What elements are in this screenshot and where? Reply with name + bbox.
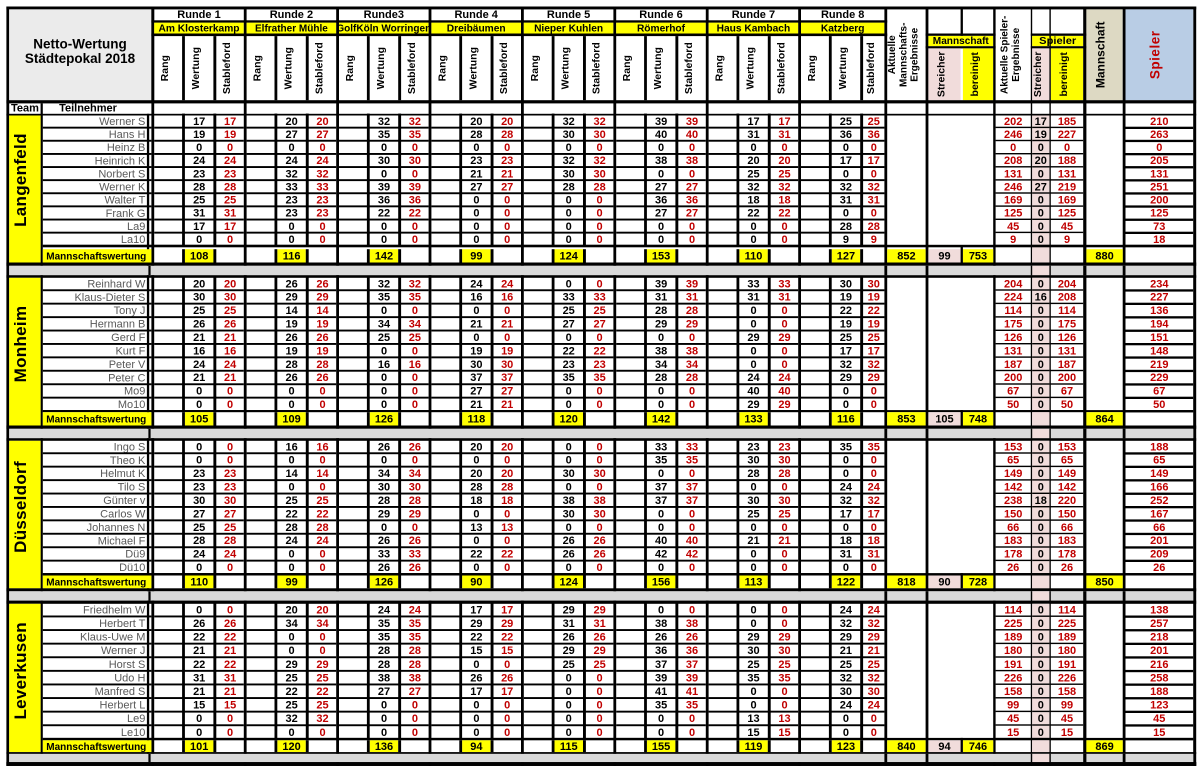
svg-text:39: 39 [409,181,421,193]
svg-text:26: 26 [470,672,482,684]
svg-text:216: 216 [1150,659,1168,671]
svg-text:Runde 7: Runde 7 [732,9,775,21]
svg-text:Wertung: Wertung [467,47,479,89]
svg-text:0: 0 [1038,508,1044,520]
svg-text:0: 0 [504,195,510,207]
svg-text:24: 24 [778,372,791,384]
svg-text:227: 227 [1058,129,1076,141]
svg-text:18: 18 [840,535,852,547]
svg-text:0: 0 [319,142,325,154]
svg-text:28: 28 [224,535,236,547]
svg-text:21: 21 [840,645,852,657]
svg-text:0: 0 [289,632,295,644]
svg-text:25: 25 [778,508,790,520]
svg-text:20: 20 [316,116,328,128]
svg-text:17: 17 [747,116,759,128]
svg-text:Nieper Kuhlen: Nieper Kuhlen [534,24,603,35]
svg-text:26: 26 [378,562,390,574]
svg-text:0: 0 [227,386,233,398]
svg-text:Stableford: Stableford [776,42,788,94]
svg-text:Wertung: Wertung [745,47,757,89]
svg-text:0: 0 [412,221,418,233]
svg-text:26: 26 [193,618,205,630]
svg-text:189: 189 [1004,632,1022,644]
svg-text:19: 19 [840,292,852,304]
svg-text:65: 65 [1061,455,1073,467]
svg-text:Am Klosterkamp: Am Klosterkamp [159,24,240,35]
svg-text:Stableford: Stableford [865,42,877,94]
svg-text:45: 45 [1061,221,1073,233]
svg-text:0: 0 [597,386,603,398]
svg-text:0: 0 [689,221,695,233]
svg-text:39: 39 [655,672,667,684]
svg-text:108: 108 [190,251,208,263]
svg-text:0: 0 [1038,195,1044,207]
svg-text:225: 225 [1004,618,1022,630]
svg-text:Kurt F: Kurt F [115,346,145,358]
svg-text:142: 142 [1004,482,1022,494]
svg-text:13: 13 [747,713,759,725]
svg-text:Haus Kambach: Haus Kambach [717,24,791,35]
svg-text:24: 24 [868,482,881,494]
svg-text:0: 0 [566,195,572,207]
svg-text:La10: La10 [121,234,145,246]
svg-text:15: 15 [1061,727,1073,739]
svg-text:0: 0 [1038,332,1044,344]
svg-text:67: 67 [1153,386,1165,398]
svg-text:0: 0 [227,562,233,574]
svg-text:30: 30 [747,495,759,507]
svg-text:31: 31 [778,129,790,141]
svg-text:31: 31 [193,672,205,684]
svg-text:0: 0 [843,455,849,467]
svg-text:32: 32 [840,359,852,371]
svg-text:Aktuelle: Aktuelle [887,35,898,74]
svg-text:32: 32 [593,155,605,167]
svg-text:18: 18 [470,495,482,507]
svg-text:13: 13 [778,713,790,725]
svg-text:0: 0 [843,399,849,411]
svg-text:30: 30 [747,645,759,657]
svg-text:35: 35 [409,129,421,141]
svg-text:748: 748 [969,414,987,426]
svg-text:Heinrich K: Heinrich K [95,155,146,167]
svg-text:21: 21 [501,319,513,331]
svg-text:0: 0 [750,319,756,331]
svg-text:133: 133 [744,414,762,426]
svg-text:728: 728 [969,577,987,589]
svg-text:Mo9: Mo9 [124,386,145,398]
svg-text:Tilo S: Tilo S [118,482,146,494]
svg-text:0: 0 [289,221,295,233]
svg-text:0: 0 [871,168,877,180]
svg-text:25: 25 [593,659,605,671]
svg-text:0: 0 [566,562,572,574]
svg-text:0: 0 [566,686,572,698]
svg-text:0: 0 [473,195,479,207]
svg-text:0: 0 [473,142,479,154]
svg-text:18: 18 [1035,495,1047,507]
svg-text:124: 124 [560,577,579,589]
svg-text:Helmut K: Helmut K [100,468,146,480]
svg-text:23: 23 [316,208,328,220]
svg-text:0: 0 [781,359,787,371]
svg-text:33: 33 [747,278,759,290]
svg-text:Streicher: Streicher [936,52,948,98]
svg-text:0: 0 [781,604,787,616]
svg-text:25: 25 [778,168,790,180]
svg-text:26: 26 [686,632,698,644]
svg-text:26: 26 [316,372,328,384]
svg-text:0: 0 [597,455,603,467]
svg-text:18: 18 [747,195,759,207]
svg-text:25: 25 [563,305,575,317]
svg-text:138: 138 [1150,604,1168,616]
svg-text:25: 25 [593,305,605,317]
svg-text:0: 0 [658,508,664,520]
svg-text:0: 0 [750,221,756,233]
svg-text:Walter T: Walter T [104,195,145,207]
svg-text:30: 30 [563,129,575,141]
svg-text:0: 0 [412,455,418,467]
svg-text:Klaus-Dieter S: Klaus-Dieter S [74,292,145,304]
svg-text:0: 0 [658,168,664,180]
svg-text:0: 0 [658,386,664,398]
svg-text:20: 20 [501,468,513,480]
svg-text:0: 0 [504,305,510,317]
svg-text:Günter v: Günter v [103,495,146,507]
svg-text:38: 38 [409,672,421,684]
svg-text:220: 220 [1058,495,1076,507]
svg-text:39: 39 [686,116,698,128]
svg-text:29: 29 [655,319,667,331]
svg-text:0: 0 [412,713,418,725]
svg-text:Werner J: Werner J [101,645,145,657]
svg-text:32: 32 [868,359,880,371]
svg-text:0: 0 [843,468,849,480]
svg-text:0: 0 [473,208,479,220]
svg-text:Udo H: Udo H [114,672,145,684]
svg-text:18: 18 [778,195,790,207]
svg-text:0: 0 [412,522,418,534]
svg-text:0: 0 [196,142,202,154]
svg-text:175: 175 [1004,319,1022,331]
svg-text:32: 32 [593,116,605,128]
svg-text:126: 126 [375,577,393,589]
svg-text:20: 20 [470,468,482,480]
svg-text:25: 25 [224,522,236,534]
svg-text:26: 26 [316,278,328,290]
svg-text:31: 31 [686,292,698,304]
svg-text:0: 0 [289,562,295,574]
svg-text:99: 99 [1061,700,1073,712]
svg-text:0: 0 [689,522,695,534]
svg-text:35: 35 [409,632,421,644]
svg-text:24: 24 [193,155,206,167]
svg-text:22: 22 [563,345,575,357]
svg-text:21: 21 [470,319,482,331]
svg-text:0: 0 [196,604,202,616]
svg-text:0: 0 [781,562,787,574]
svg-text:28: 28 [193,181,205,193]
svg-text:0: 0 [412,142,418,154]
svg-text:Runde3: Runde3 [364,9,404,21]
svg-text:27: 27 [686,208,698,220]
svg-text:118: 118 [468,414,486,426]
svg-text:105: 105 [935,414,953,426]
svg-text:0: 0 [871,399,877,411]
svg-text:0: 0 [566,208,572,220]
svg-text:21: 21 [778,535,790,547]
svg-text:0: 0 [504,727,510,739]
svg-text:131: 131 [1058,168,1076,180]
svg-text:0: 0 [658,604,664,616]
svg-text:25: 25 [378,332,390,344]
svg-text:17: 17 [501,686,513,698]
svg-text:818: 818 [897,577,915,589]
svg-text:0: 0 [597,234,603,246]
svg-text:27: 27 [470,386,482,398]
svg-text:125: 125 [1004,208,1022,220]
svg-text:0: 0 [689,168,695,180]
svg-text:31: 31 [193,208,205,220]
svg-text:33: 33 [563,292,575,304]
svg-text:0: 0 [658,142,664,154]
svg-text:18: 18 [501,495,513,507]
svg-text:0: 0 [319,221,325,233]
svg-text:187: 187 [1004,359,1022,371]
svg-text:15: 15 [501,645,513,657]
svg-text:0: 0 [319,399,325,411]
svg-text:0: 0 [871,386,877,398]
svg-text:149: 149 [1150,468,1168,480]
svg-text:Mannschaftswertung: Mannschaftswertung [46,252,146,263]
svg-text:30: 30 [409,482,421,494]
svg-text:19: 19 [501,345,513,357]
svg-text:90: 90 [938,577,950,589]
svg-text:26: 26 [409,535,421,547]
svg-text:17: 17 [224,116,236,128]
svg-text:13: 13 [470,522,482,534]
svg-text:25: 25 [868,116,880,128]
svg-text:22: 22 [224,659,236,671]
svg-text:Mo10: Mo10 [118,399,146,411]
svg-text:67: 67 [1007,386,1019,398]
svg-text:0: 0 [597,399,603,411]
svg-text:0: 0 [658,727,664,739]
svg-text:0: 0 [689,234,695,246]
svg-text:27: 27 [470,181,482,193]
svg-text:0: 0 [227,399,233,411]
svg-text:30: 30 [778,455,790,467]
svg-text:Wertung: Wertung [837,47,849,89]
svg-text:225: 225 [1058,618,1076,630]
svg-text:0: 0 [1038,234,1044,246]
svg-text:38: 38 [655,345,667,357]
svg-text:22: 22 [316,686,328,698]
svg-text:0: 0 [658,562,664,574]
svg-text:0: 0 [473,221,479,233]
svg-text:20: 20 [501,116,513,128]
svg-text:25: 25 [747,508,759,520]
svg-text:0: 0 [381,727,387,739]
svg-text:29: 29 [868,372,880,384]
svg-text:17: 17 [840,508,852,520]
svg-text:38: 38 [686,155,698,167]
svg-text:0: 0 [750,700,756,712]
svg-text:Hans H: Hans H [109,129,146,141]
svg-text:0: 0 [289,727,295,739]
svg-text:Klaus-Uwe M: Klaus-Uwe M [80,632,145,644]
svg-text:39: 39 [378,181,390,193]
svg-text:169: 169 [1004,195,1022,207]
svg-text:31: 31 [563,618,575,630]
svg-text:99: 99 [285,577,297,589]
svg-text:0: 0 [1010,142,1016,154]
svg-text:0: 0 [381,713,387,725]
svg-text:0: 0 [381,234,387,246]
svg-text:20: 20 [316,604,328,616]
svg-text:40: 40 [655,535,667,547]
svg-text:0: 0 [1156,142,1162,154]
svg-text:27: 27 [193,508,205,520]
svg-text:Frank G: Frank G [106,208,146,220]
svg-text:24: 24 [868,604,881,616]
svg-text:166: 166 [1150,482,1168,494]
svg-text:20: 20 [470,441,482,453]
svg-text:26: 26 [593,535,605,547]
svg-text:Johannes N: Johannes N [87,522,146,534]
svg-text:0: 0 [871,713,877,725]
svg-text:21: 21 [501,168,513,180]
svg-text:16: 16 [224,345,236,357]
svg-text:40: 40 [778,386,790,398]
svg-text:0: 0 [381,305,387,317]
svg-text:0: 0 [1038,549,1044,561]
svg-text:0: 0 [1038,618,1044,630]
svg-text:36: 36 [655,645,667,657]
svg-text:22: 22 [501,549,513,561]
svg-text:20: 20 [285,604,297,616]
svg-text:33: 33 [378,549,390,561]
svg-text:101: 101 [190,741,208,753]
svg-text:33: 33 [316,181,328,193]
svg-text:201: 201 [1150,645,1168,657]
svg-text:0: 0 [319,549,325,561]
svg-text:155: 155 [652,741,670,753]
svg-text:20: 20 [747,155,759,167]
svg-text:28: 28 [501,129,513,141]
svg-text:149: 149 [1004,468,1022,480]
svg-text:37: 37 [686,495,698,507]
svg-text:123: 123 [837,741,855,753]
svg-text:17: 17 [840,155,852,167]
svg-text:28: 28 [593,181,605,193]
svg-text:0: 0 [1038,441,1044,453]
svg-text:17: 17 [470,604,482,616]
svg-text:32: 32 [316,713,328,725]
svg-text:23: 23 [224,168,236,180]
svg-text:26: 26 [224,618,236,630]
svg-text:0: 0 [289,142,295,154]
svg-text:66: 66 [1061,522,1073,534]
svg-text:0: 0 [597,727,603,739]
svg-text:113: 113 [745,577,763,589]
svg-text:208: 208 [1004,155,1022,167]
svg-text:30: 30 [593,168,605,180]
svg-text:42: 42 [686,549,698,561]
svg-text:14: 14 [285,305,298,317]
svg-text:32: 32 [868,495,880,507]
svg-text:27: 27 [563,319,575,331]
svg-text:25: 25 [778,659,790,671]
svg-text:26: 26 [224,319,236,331]
svg-text:29: 29 [747,399,759,411]
svg-text:175: 175 [1058,319,1076,331]
svg-text:Friedhelm W: Friedhelm W [83,604,146,616]
svg-text:0: 0 [473,305,479,317]
svg-text:17: 17 [868,345,880,357]
svg-text:Werner S: Werner S [99,116,145,128]
svg-text:0: 0 [473,455,479,467]
svg-text:Werner K: Werner K [99,182,146,194]
svg-text:0: 0 [227,713,233,725]
svg-text:840: 840 [897,741,915,753]
svg-text:0: 0 [689,713,695,725]
svg-text:25: 25 [840,332,852,344]
svg-text:0: 0 [689,604,695,616]
svg-text:0: 0 [412,386,418,398]
svg-text:105: 105 [190,414,208,426]
svg-text:28: 28 [378,659,390,671]
svg-text:Langenfeld: Langenfeld [11,133,30,227]
svg-text:125: 125 [1150,208,1168,220]
svg-text:25: 25 [285,495,297,507]
svg-text:15: 15 [1153,727,1165,739]
svg-text:35: 35 [655,455,667,467]
svg-text:200: 200 [1058,372,1076,384]
svg-text:142: 142 [375,251,393,263]
svg-text:20: 20 [778,155,790,167]
svg-text:0: 0 [504,508,510,520]
svg-text:30: 30 [224,495,236,507]
svg-text:131: 131 [1058,345,1076,357]
svg-text:Herbert T: Herbert T [99,618,146,630]
svg-text:27: 27 [501,181,513,193]
svg-text:30: 30 [378,155,390,167]
svg-text:156: 156 [652,577,670,589]
svg-text:142: 142 [652,414,670,426]
svg-text:24: 24 [193,549,206,561]
svg-text:864: 864 [1095,414,1114,426]
svg-text:0: 0 [473,700,479,712]
svg-text:0: 0 [289,455,295,467]
svg-text:34: 34 [285,618,298,630]
svg-text:50: 50 [1061,399,1073,411]
svg-text:234: 234 [1150,278,1169,290]
svg-text:202: 202 [1004,116,1022,128]
svg-text:38: 38 [593,495,605,507]
svg-text:201: 201 [1150,535,1168,547]
svg-text:Aktuelle Spieler-: Aktuelle Spieler- [1000,16,1011,94]
svg-text:0: 0 [689,386,695,398]
svg-text:29: 29 [501,618,513,630]
svg-text:123: 123 [1150,700,1168,712]
svg-text:39: 39 [686,672,698,684]
svg-text:0: 0 [504,142,510,154]
svg-text:0: 0 [781,345,787,357]
svg-text:0: 0 [289,549,295,561]
